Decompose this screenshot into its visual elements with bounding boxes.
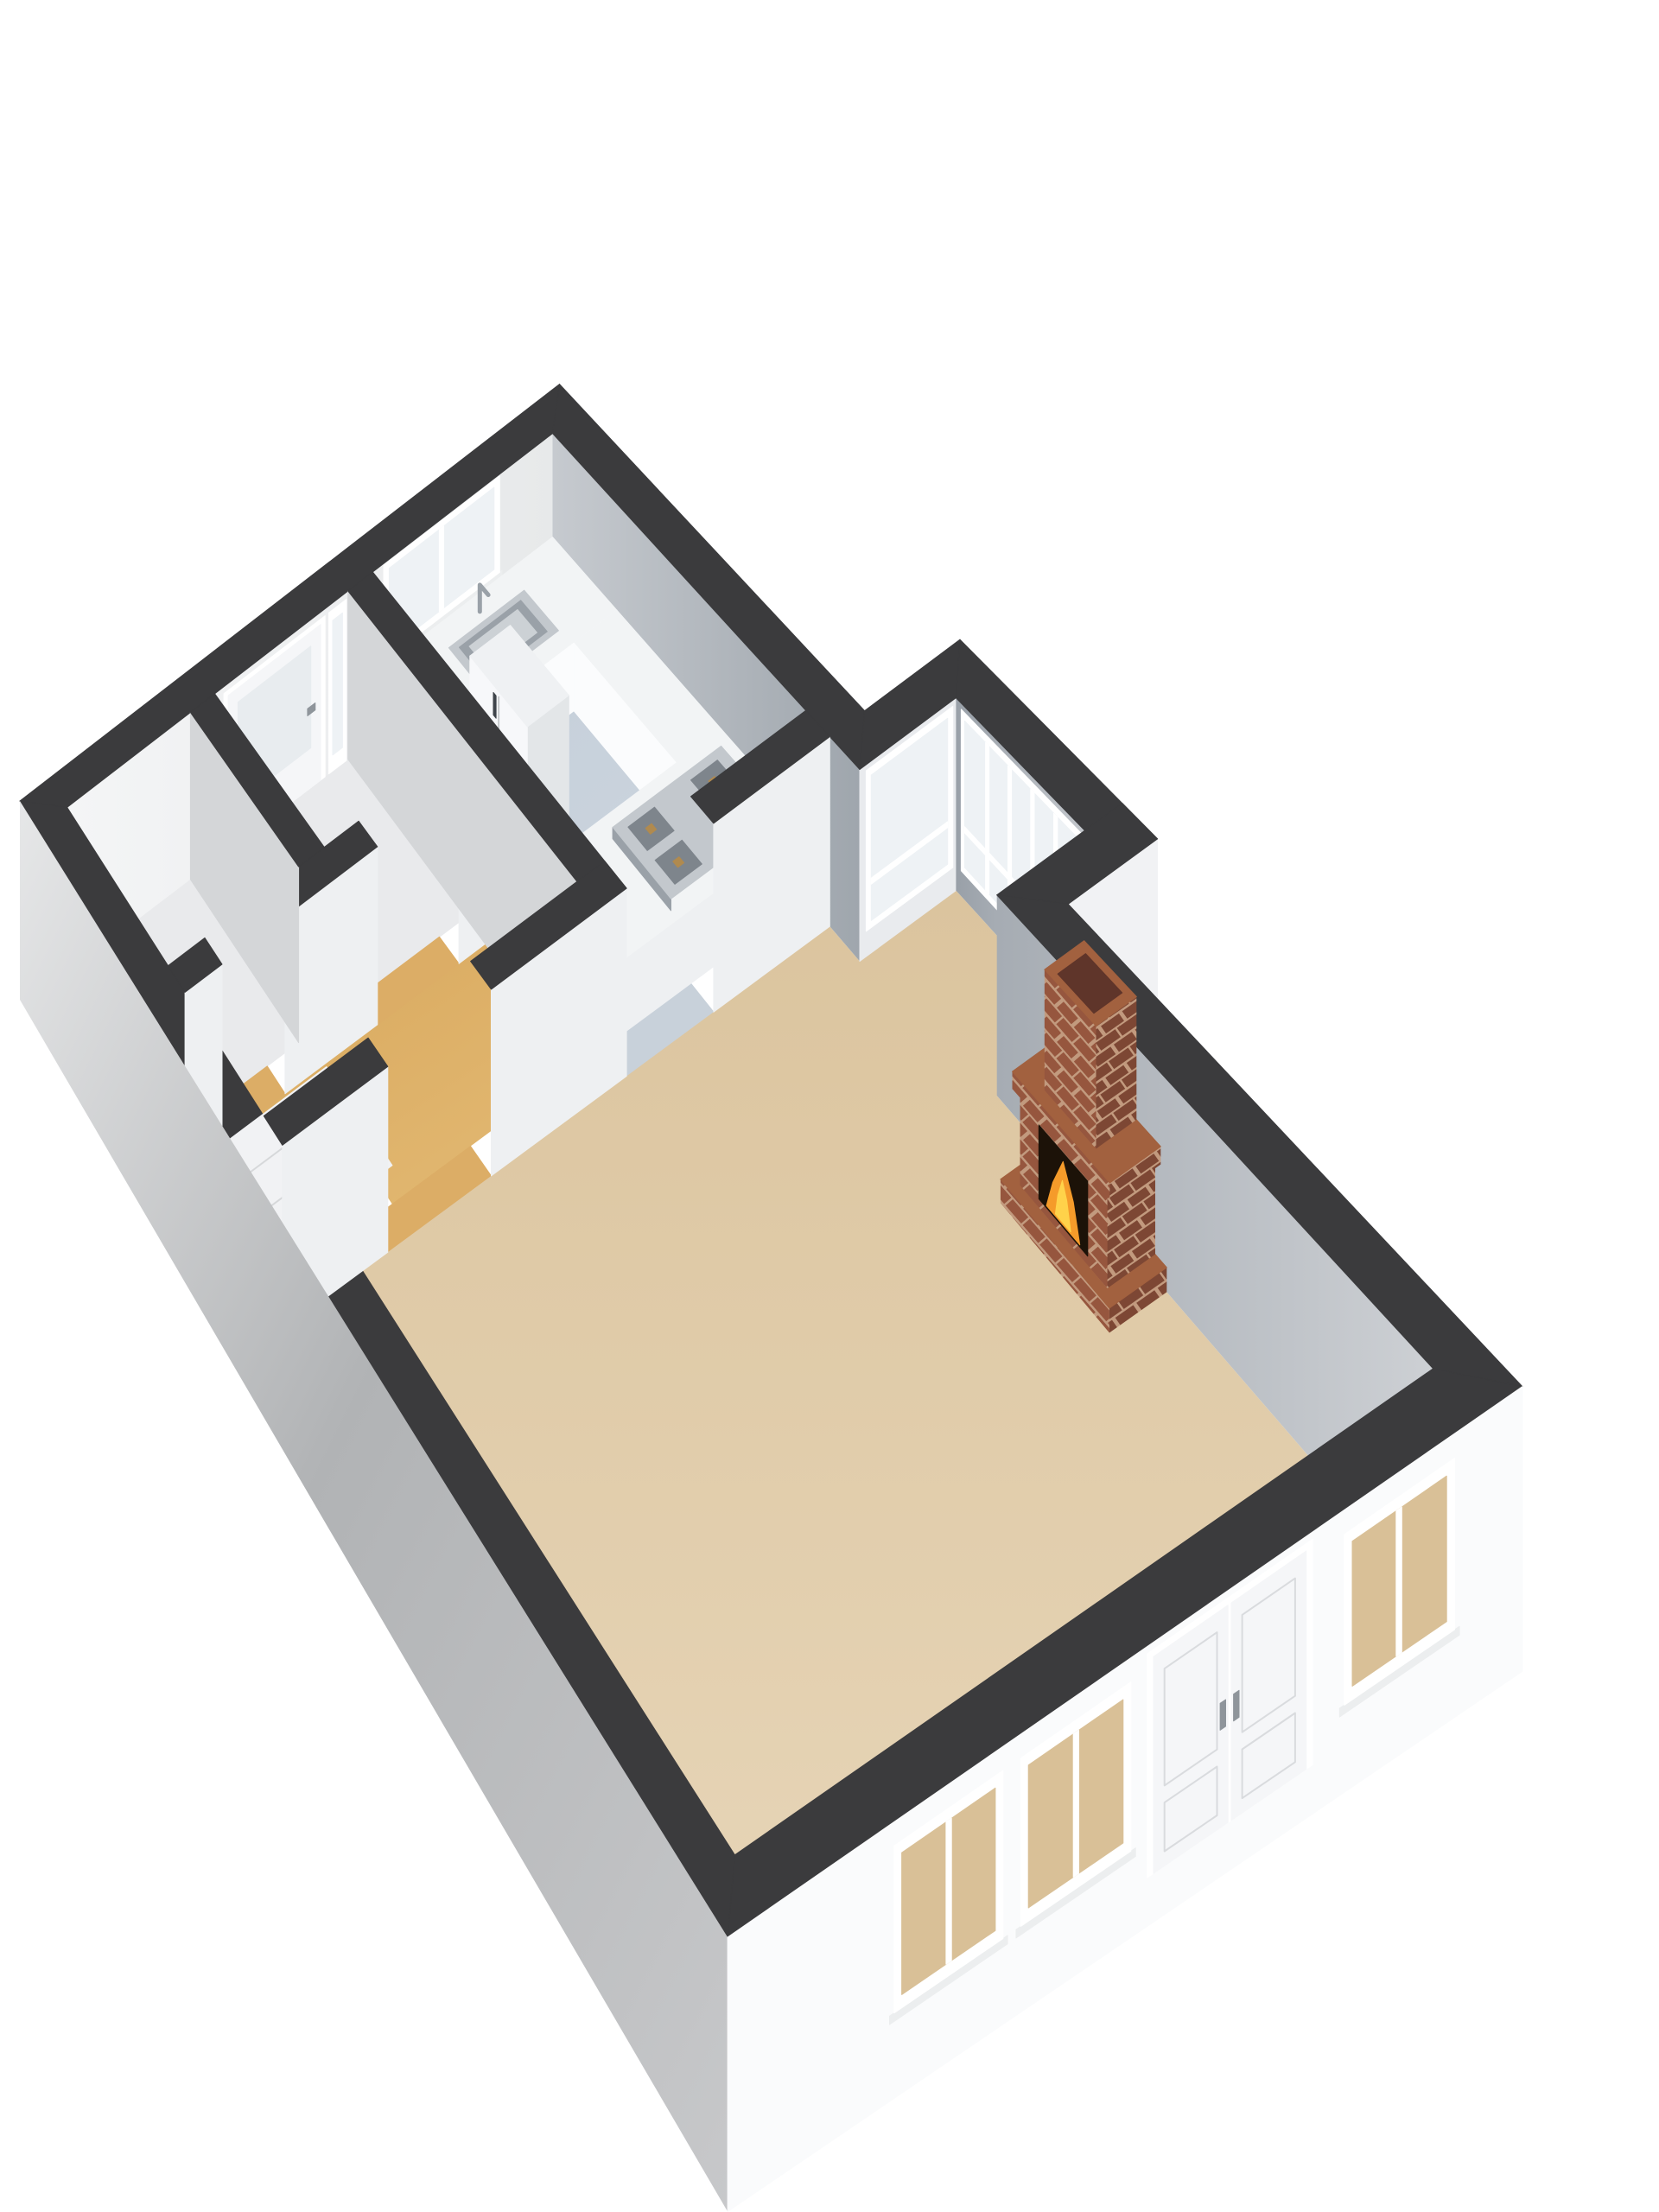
sidelight-glass	[333, 613, 342, 755]
se-window2-mullion	[1073, 1731, 1078, 1878]
floorplan-3d-view	[0, 0, 1659, 2212]
window-band-mullion-1	[986, 742, 989, 893]
se-door-handle-left	[1220, 1700, 1225, 1730]
se-window1-mullion	[946, 1818, 951, 1964]
se-window3-mullion	[1396, 1507, 1402, 1656]
se-door-handle-right	[1234, 1690, 1239, 1721]
tall-cabinet-handle	[493, 692, 496, 718]
kitchen-window-mullion	[439, 526, 443, 612]
floorplan-stage	[0, 0, 1659, 2212]
floorplan-scene	[20, 385, 1522, 2212]
